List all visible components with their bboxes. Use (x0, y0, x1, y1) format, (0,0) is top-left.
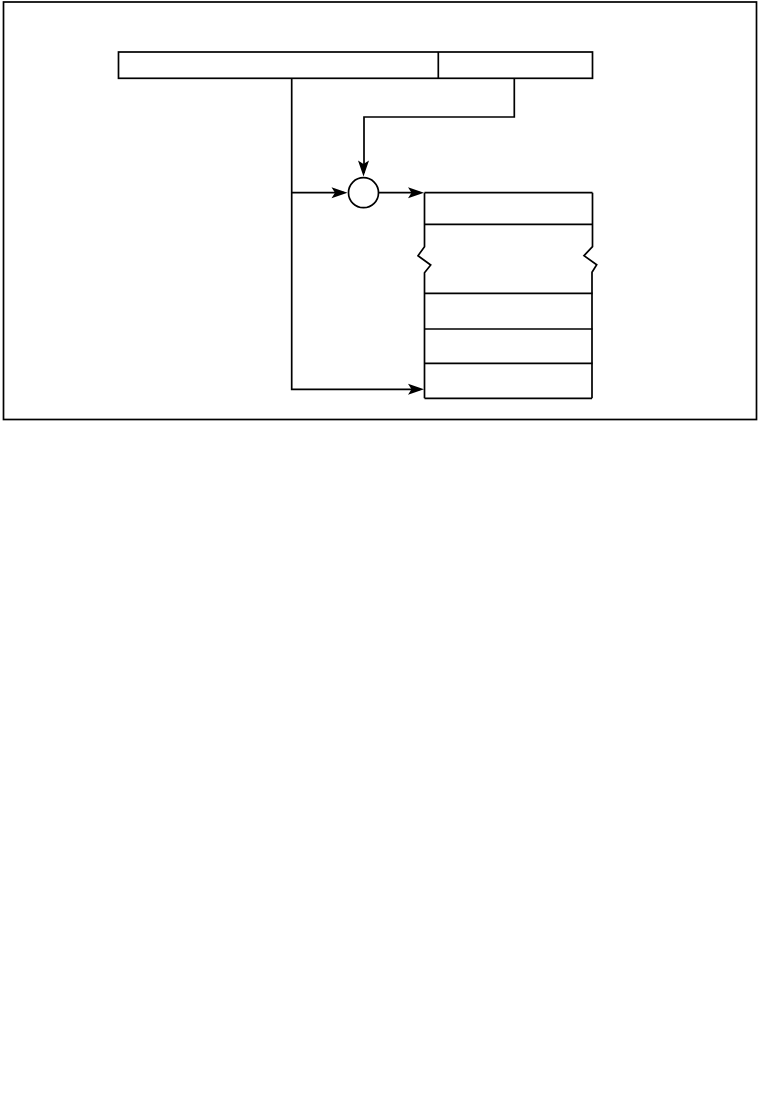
adder-circle (349, 178, 379, 208)
figure-border (4, 2, 757, 420)
left-field-connector (292, 78, 420, 389)
addressing-mode-diagram (0, 0, 760, 1107)
address-field-connector (364, 78, 514, 173)
instruction-word-box (119, 52, 593, 78)
page (0, 0, 760, 1107)
